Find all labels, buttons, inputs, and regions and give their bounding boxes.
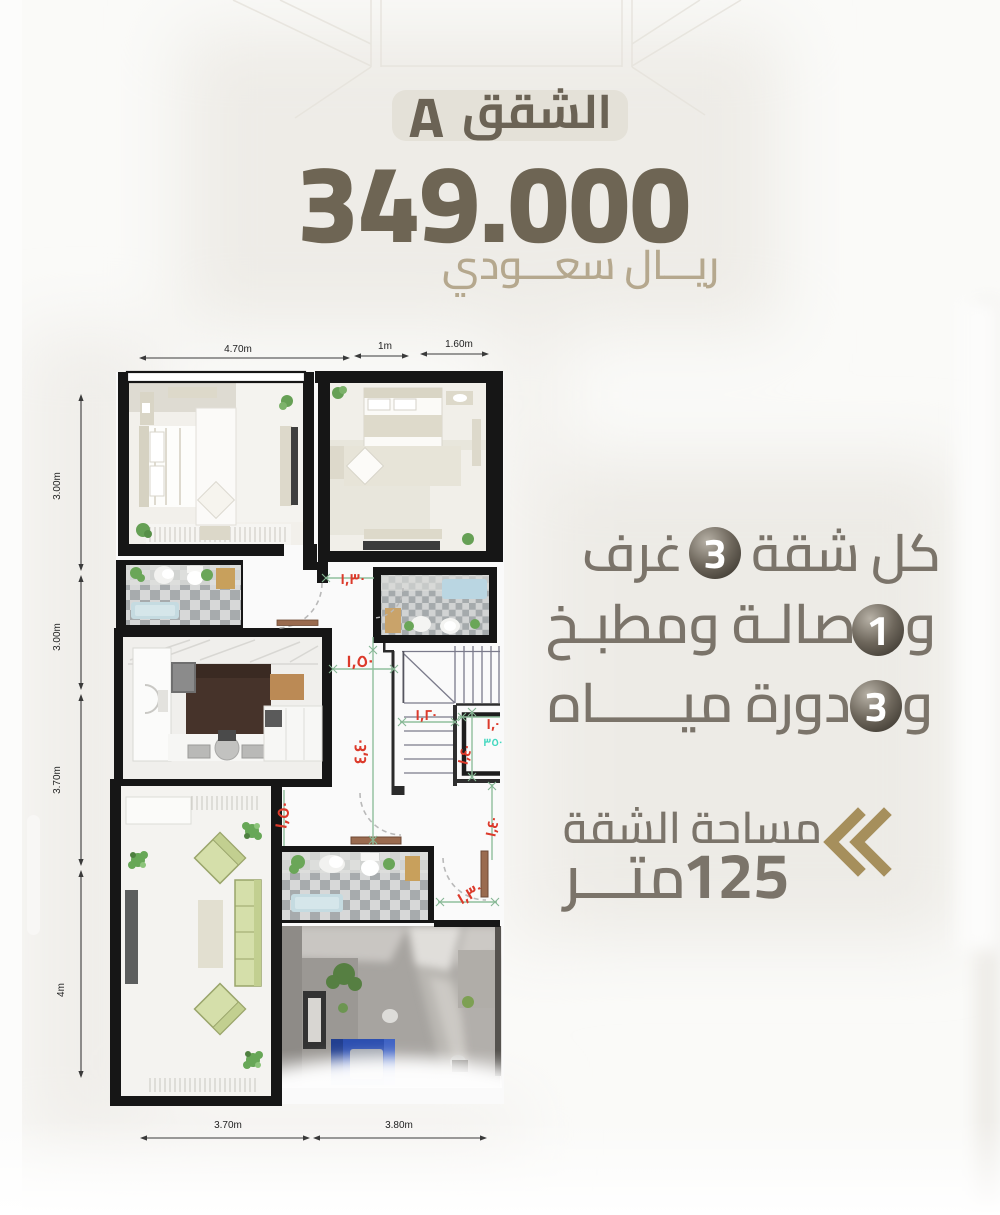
svg-text:3.00m: 3.00m	[52, 623, 63, 651]
svg-text:3.80m: 3.80m	[385, 1120, 413, 1131]
svg-text:4m: 4m	[56, 983, 67, 997]
svg-text:3.70m: 3.70m	[52, 766, 63, 794]
svg-text:3.00m: 3.00m	[52, 472, 63, 500]
svg-text:3.70m: 3.70m	[214, 1120, 242, 1131]
svg-text:1.60m: 1.60m	[445, 339, 473, 350]
svg-text:1m: 1m	[378, 341, 392, 352]
svg-text:4.70m: 4.70m	[224, 344, 252, 355]
